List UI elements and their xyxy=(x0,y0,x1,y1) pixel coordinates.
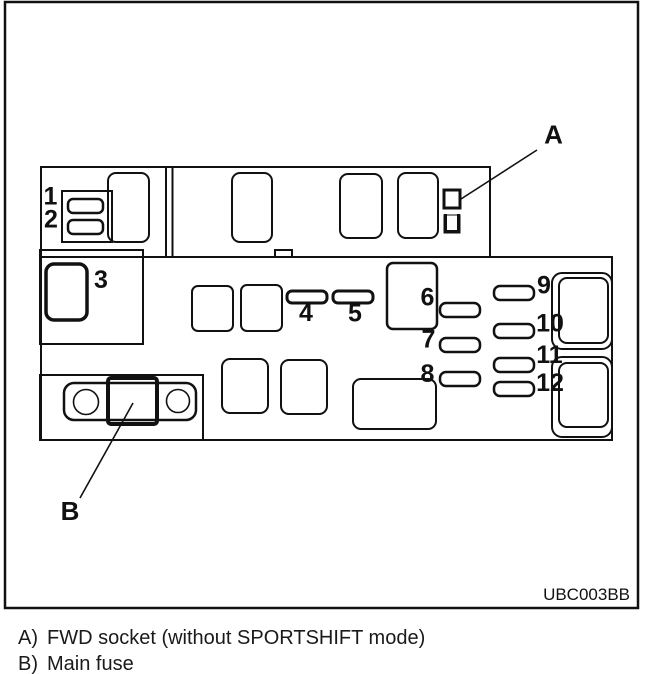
relay-slot-upper-mid-1 xyxy=(232,173,272,242)
figure-frame xyxy=(5,2,638,608)
fuse-label-3: 3 xyxy=(94,266,108,294)
figure-code: UBC003BB xyxy=(543,585,630,604)
fuse-12 xyxy=(494,382,534,396)
legend-item-b: B) Main fuse xyxy=(18,651,628,674)
fwd-socket-terminal-lower-border xyxy=(446,214,459,232)
fuse-8 xyxy=(440,372,480,386)
fuse-3 xyxy=(46,264,87,320)
callout-b-label: B xyxy=(61,496,80,526)
fuse-1 xyxy=(68,199,103,213)
fuse-11 xyxy=(494,358,534,372)
relay-slot-upper-mid-2 xyxy=(340,174,382,238)
fuse-label-4: 4 xyxy=(299,299,313,327)
legend-key-b: B) xyxy=(18,651,47,674)
callout-a-leader-line xyxy=(461,150,537,199)
relay-slot-mid-1 xyxy=(192,286,233,331)
relay-slot-low-1 xyxy=(222,359,268,413)
fuse-label-11: 11 xyxy=(536,341,563,369)
fuse-label-7: 7 xyxy=(422,326,436,354)
fuse-label-5: 5 xyxy=(348,300,362,328)
fuse-9 xyxy=(494,286,534,300)
legend-key-a: A) xyxy=(18,625,47,651)
fuse-label-8: 8 xyxy=(421,360,435,388)
relay-slot-upper-mid-3 xyxy=(398,173,438,238)
fuse-10 xyxy=(494,324,534,338)
fuse-7 xyxy=(440,338,480,352)
connector-top-inner xyxy=(559,278,608,343)
relay-slot-low-2 xyxy=(281,360,327,414)
fuse-label-6: 6 xyxy=(421,284,435,312)
fuse-6 xyxy=(440,303,480,317)
fuse-2 xyxy=(68,220,103,234)
main-fuse-center-block xyxy=(108,378,157,424)
callout-a-label: A xyxy=(544,120,563,150)
relay-slot-mid-2 xyxy=(241,285,282,331)
fuse-box-diagram: 1 2 A 3 B 4 5 xyxy=(0,0,646,620)
main-fuse-terminal-right xyxy=(167,390,190,413)
figure-legend: A) FWD socket (without SPORTSHIFT mode) … xyxy=(18,625,628,674)
legend-text-a: FWD socket (without SPORTSHIFT mode) xyxy=(47,625,628,651)
manual-page: 1 2 A 3 B 4 5 xyxy=(0,0,646,674)
main-fuse-terminal-left xyxy=(74,390,99,415)
relay-slot-upper-left xyxy=(108,173,149,242)
connector-bottom-inner xyxy=(559,363,608,427)
fuse-label-9: 9 xyxy=(537,272,551,300)
fwd-socket-terminal-upper xyxy=(444,190,460,208)
legend-text-b: Main fuse xyxy=(47,651,628,674)
fuse-label-2: 2 xyxy=(44,206,58,234)
legend-item-a: A) FWD socket (without SPORTSHIFT mode) xyxy=(18,625,628,651)
